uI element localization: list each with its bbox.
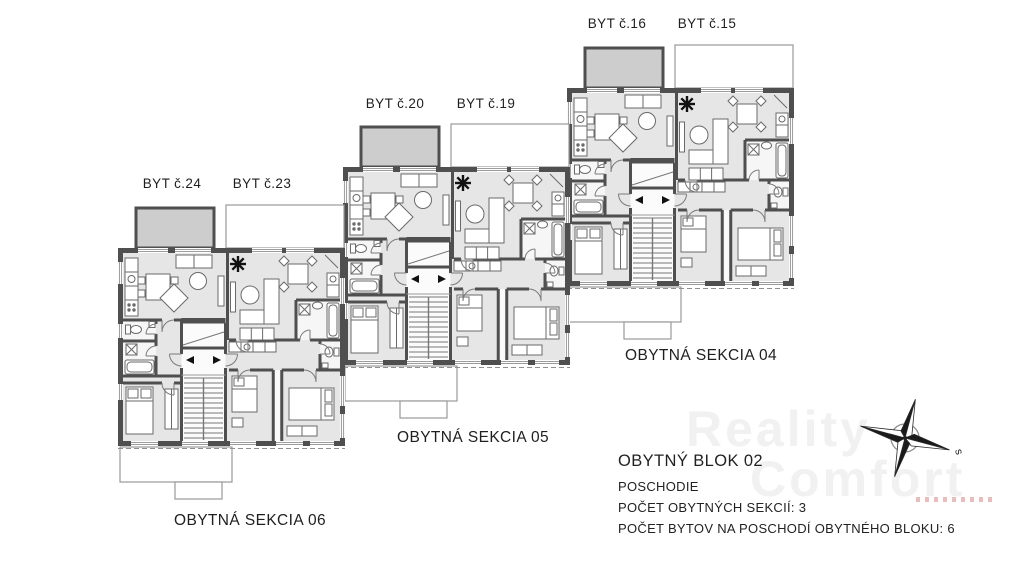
apartments-count: POČET BYTOV NA POSCHODÍ OBYTNÉHO BLOKU: … (618, 521, 955, 536)
section-label-06: OBYTNÁ SEKCIA 06 (174, 512, 326, 530)
apartment-label-byt-23: BYT č.23 (233, 176, 291, 191)
section-label-04: OBYTNÁ SEKCIA 04 (625, 347, 777, 365)
apartment-label-byt-15: BYT č.15 (678, 16, 736, 31)
block-title: OBYTNÝ BLOK 02 (618, 452, 955, 471)
floorplan-canvas: Reality Comfort (0, 0, 1011, 570)
apartment-label-byt-20: BYT č.20 (366, 96, 424, 111)
section-06-plan (118, 205, 345, 499)
apartment-label-byt-24: BYT č.24 (143, 176, 201, 191)
section-04-plan (567, 45, 794, 339)
apartment-label-byt-16: BYT č.16 (588, 16, 646, 31)
apartment-label-byt-19: BYT č.19 (457, 96, 515, 111)
info-block: OBYTNÝ BLOK 02 POSCHODIE POČET OBYTNÝCH … (618, 452, 955, 542)
section-label-05: OBYTNÁ SEKCIA 05 (397, 429, 549, 447)
sections-count: POČET OBYTNÝCH SEKCIÍ: 3 (618, 500, 955, 515)
floor-label: POSCHODIE (618, 479, 955, 494)
section-05-plan (343, 124, 570, 418)
